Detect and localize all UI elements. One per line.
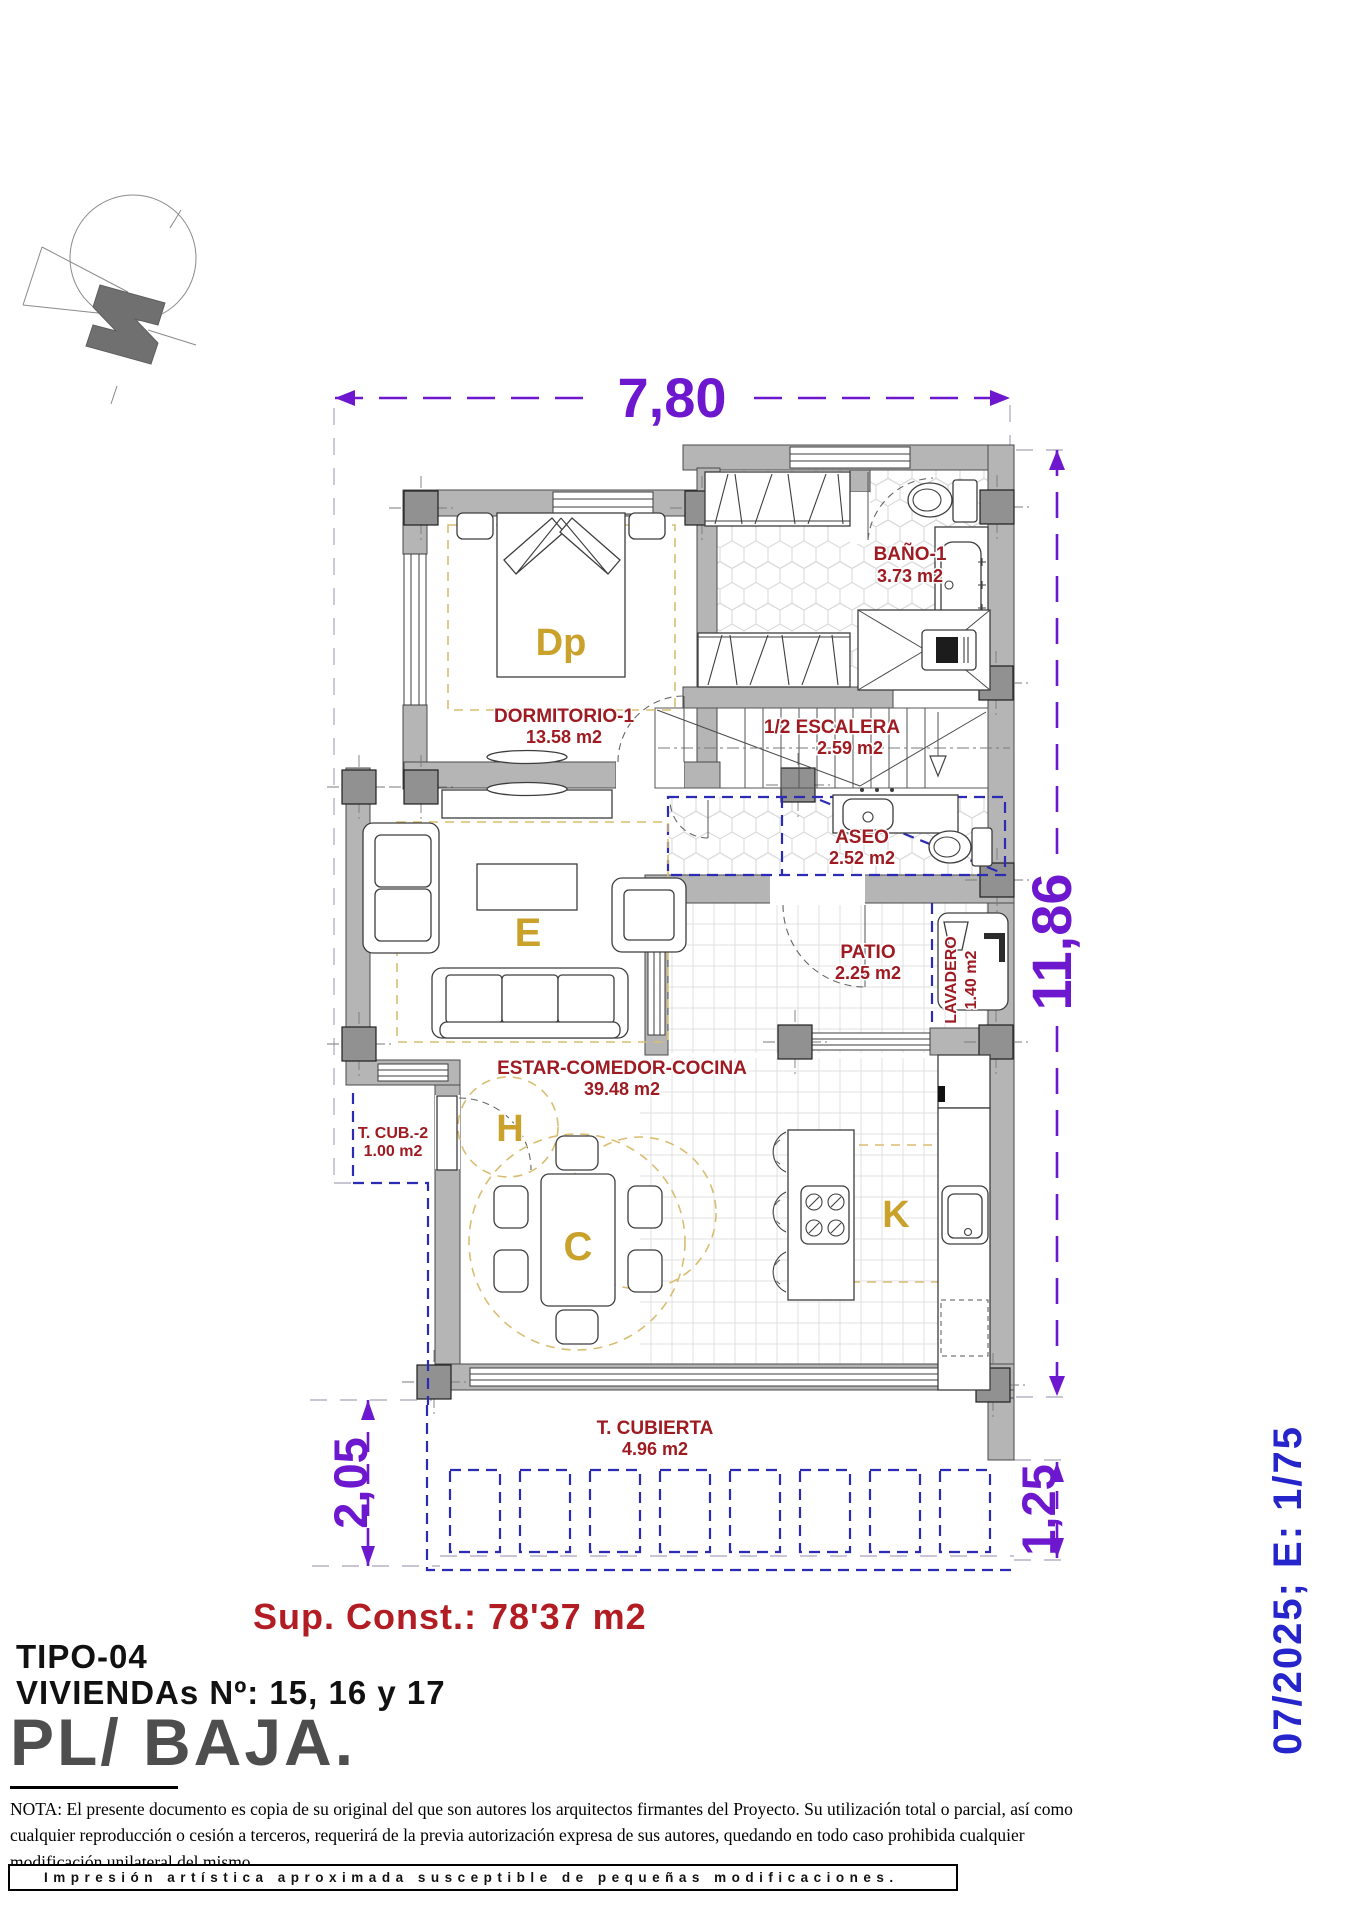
dim-bottom-left-label: 2,05	[324, 1437, 377, 1528]
floor-title: PL/ BAJA.	[10, 1704, 356, 1780]
floor-plan: 7,80 11,86 2,05 1,25 BAÑO-1 3.73 m2 DORM…	[0, 0, 1356, 1920]
dim-top: 7,80	[335, 366, 1010, 429]
dim-bottom-right: 1,25	[1012, 1462, 1065, 1558]
label-bano: BAÑO-1	[874, 543, 947, 565]
entry-door-leaf	[437, 1096, 457, 1170]
porch-window	[378, 1064, 448, 1081]
bedroom-top-window	[553, 492, 653, 514]
label-aseo: ASEO	[835, 827, 889, 848]
bedroom-tv-icon	[487, 751, 567, 764]
shower-icon	[858, 610, 990, 690]
letter-dormitorio: Dp	[536, 622, 587, 664]
patio-bottom-window	[812, 1033, 930, 1050]
legal-note: NOTA: El presente documento es copia de …	[10, 1796, 1076, 1875]
letter-living: E	[515, 911, 542, 955]
sofa-three-seat-icon	[432, 968, 628, 1038]
label-tcub2: T. CUB.-2	[358, 1125, 428, 1142]
dim-right-label: 11,86	[1020, 873, 1083, 1010]
built-area-total: Sup. Const.: 78'37 m2	[253, 1596, 647, 1638]
label-bano-area: 3.73 m2	[877, 566, 943, 586]
coffee-table-icon	[477, 864, 577, 910]
label-aseo-area: 2.52 m2	[829, 848, 895, 868]
hall-closet-bottom	[698, 633, 850, 687]
label-tcub2-area: 1.00 m2	[364, 1143, 423, 1160]
label-patio-area: 2.25 m2	[835, 963, 901, 983]
aseo-toilet-icon	[929, 828, 992, 866]
label-escalera: 1/2 ESCALERA	[764, 717, 900, 738]
label-escalera-area: 2.59 m2	[817, 738, 883, 758]
label-estar-area: 39.48 m2	[584, 1079, 660, 1099]
dim-bottom-left: 2,05	[324, 1400, 377, 1566]
title-divider	[10, 1786, 178, 1789]
sofa-two-seat-icon	[363, 823, 439, 953]
logo-z-glyph	[86, 285, 165, 364]
label-dormitorio-area: 13.58 m2	[526, 727, 602, 747]
footer-disclaimer: Impresión artística aproximada susceptib…	[8, 1864, 958, 1891]
label-lavadero-area: 1.40 m2	[963, 951, 980, 1010]
date-scale-note: 07/2025; E: 1/75	[1266, 1425, 1310, 1755]
type-label: TIPO-04	[16, 1638, 148, 1676]
kitchen-island	[788, 1130, 854, 1300]
label-patio: PATIO	[840, 942, 895, 963]
living-bottom-window	[470, 1368, 950, 1386]
dim-right: 11,86	[1020, 450, 1083, 1396]
label-dormitorio: DORMITORIO-1	[494, 706, 634, 727]
label-tcubierta: T. CUBIERTA	[597, 1418, 714, 1439]
hall-closet-top	[705, 472, 850, 526]
nightstand-right	[629, 513, 665, 539]
armchair-icon	[612, 878, 686, 952]
kitchen-sink-icon	[942, 1186, 988, 1244]
letter-dining: C	[564, 1225, 593, 1269]
letter-kitchen: K	[882, 1194, 910, 1236]
letter-hall: H	[496, 1108, 523, 1150]
label-estar: ESTAR-COMEDOR-COCINA	[497, 1058, 747, 1079]
bedroom-left-window	[404, 554, 426, 705]
nightstand-left	[457, 513, 493, 539]
fridge-icon	[938, 1055, 990, 1108]
dim-bottom-right-label: 1,25	[1012, 1464, 1065, 1555]
plan-sheet: 7,80 11,86 2,05 1,25 BAÑO-1 3.73 m2 DORM…	[0, 0, 1356, 1920]
north-arrow-logo	[23, 195, 196, 404]
dim-top-label: 7,80	[618, 366, 727, 429]
pergola-beams	[450, 1470, 990, 1552]
label-tcubierta-area: 4.96 m2	[622, 1439, 688, 1459]
bath-top-window	[790, 447, 910, 468]
kitchen-counter	[938, 1108, 990, 1390]
label-lavadero: LAVADERO	[943, 936, 960, 1023]
